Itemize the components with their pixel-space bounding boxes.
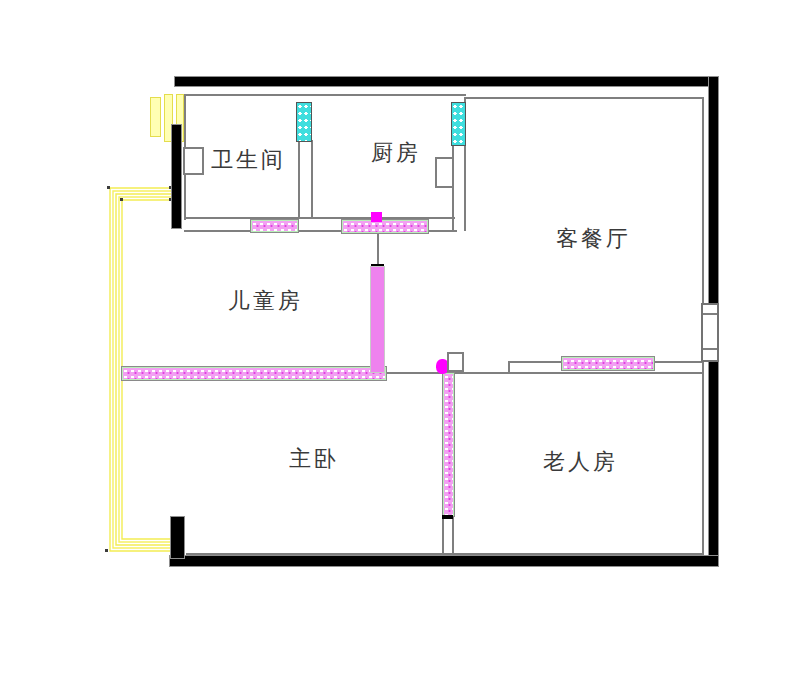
- vent-window-bathroom: [296, 102, 312, 142]
- cable-node-dot: [107, 186, 110, 189]
- bathroom-wall-notch: [183, 147, 204, 175]
- children-master-wall-hatch: [121, 366, 387, 381]
- living-top-wall: [466, 97, 704, 99]
- living-corner-notch: [447, 352, 464, 372]
- bathroom-label: 卫生间: [211, 147, 286, 173]
- cable-route-lines: [0, 0, 800, 673]
- right-exterior-wall-lower: [709, 360, 718, 566]
- cable-node-dot: [120, 198, 123, 201]
- elder-room-label: 老人房: [543, 449, 618, 475]
- bathroom-kitchen-divider-right: [311, 140, 313, 219]
- elder-window-hatch: [561, 356, 655, 371]
- living-dining-label: 客餐厅: [556, 226, 631, 252]
- corridor-divider-line: [377, 232, 379, 268]
- kitchen-door-marker: [371, 212, 382, 222]
- bathroom-door-hatch: [250, 219, 299, 233]
- floor-plan-canvas: 卫生间 厨房 客餐厅 儿童房 主卧 老人房: [0, 0, 800, 673]
- kitchen-door-hatch: [341, 219, 429, 234]
- corridor-wall-bar: [371, 267, 384, 372]
- living-window-mullion-top: [703, 313, 717, 315]
- rooms-bottom-inner-line: [186, 553, 704, 555]
- living-right-wall-inner: [702, 97, 704, 304]
- kitchen-wall-notch: [435, 157, 454, 188]
- master-elder-wall-hatch: [442, 372, 455, 517]
- master-top-wall-line: [385, 372, 445, 374]
- master-elder-wall-cap: [442, 515, 453, 519]
- elder-left-wall-inner-lower: [442, 519, 444, 557]
- master-corner-wall: [171, 517, 184, 558]
- living-window-frame: [701, 303, 719, 362]
- bathroom-exterior-wall: [172, 125, 181, 228]
- living-window-mullion-bottom: [703, 348, 717, 350]
- elder-top-wall-lower: [455, 372, 704, 374]
- master-bedroom-label: 主卧: [289, 446, 339, 472]
- bathroom-kitchen-divider-left: [298, 140, 300, 219]
- vent-window-kitchen: [451, 102, 466, 146]
- right-exterior-wall-upper: [709, 77, 718, 305]
- bottom-exterior-wall: [170, 556, 718, 566]
- kitchen-label: 厨房: [371, 140, 421, 166]
- elder-right-wall-inner: [702, 360, 704, 556]
- children-room-label: 儿童房: [228, 288, 303, 314]
- top-exterior-wall: [175, 77, 718, 86]
- wet-rooms-top-wall: [184, 94, 466, 96]
- cable-node-dot: [105, 549, 108, 552]
